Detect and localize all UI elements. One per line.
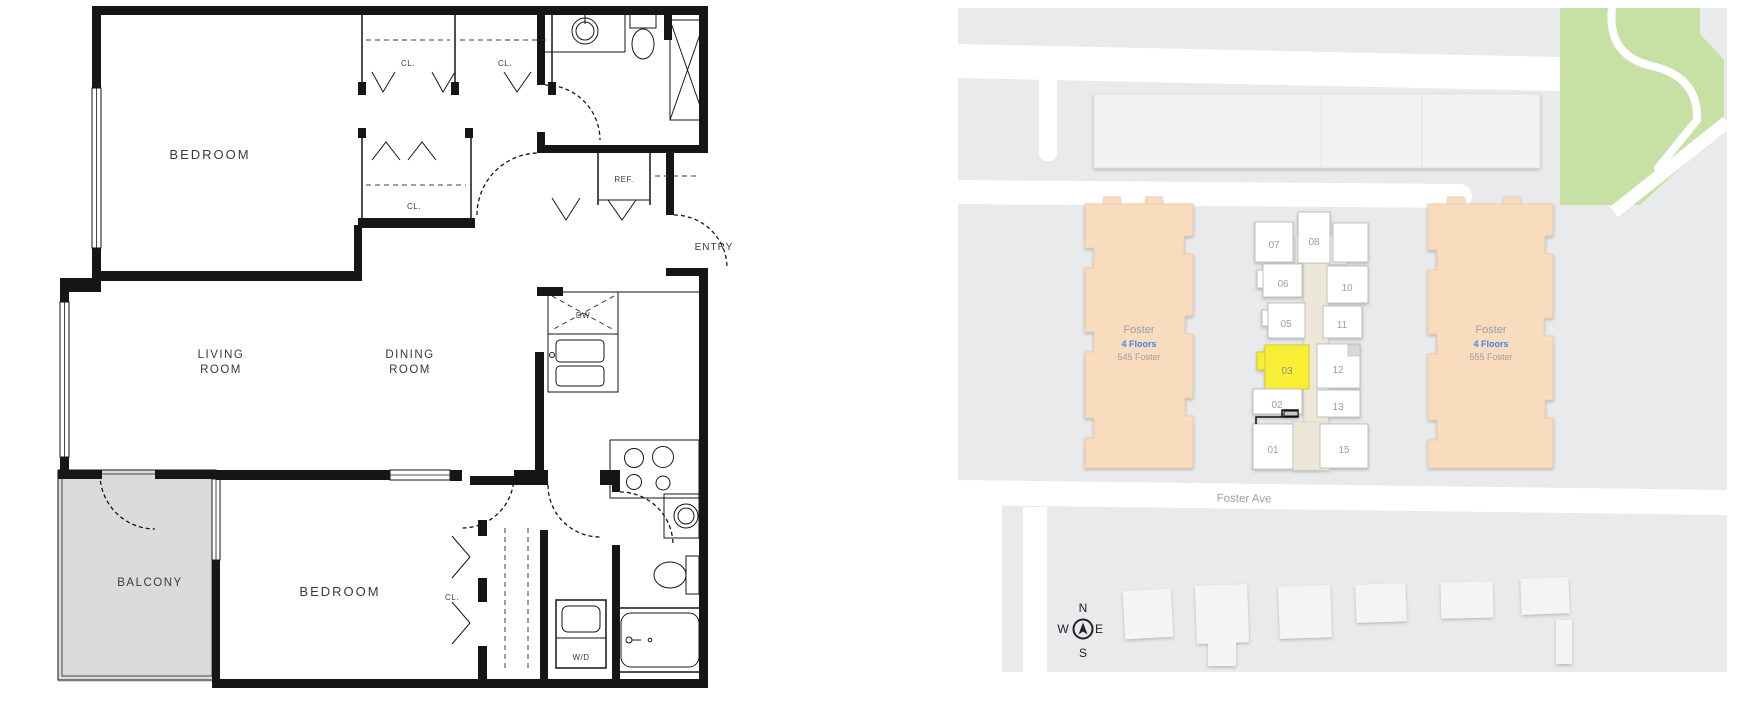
living-room-label: LIVING bbox=[198, 349, 245, 361]
unit-15-label: 15 bbox=[1338, 445, 1350, 456]
kitchen-sink-icon bbox=[556, 340, 604, 362]
listing-page: BEDROOM CL. CL. CL. REF. ENTRY DW LIVING… bbox=[0, 0, 1742, 718]
commercial-block bbox=[1094, 94, 1540, 168]
unit-10-label: 10 bbox=[1341, 283, 1353, 294]
bathroom2-fixtures bbox=[556, 494, 704, 672]
building-555-foster[interactable]: Foster 4 Floors 555 Foster bbox=[1428, 197, 1553, 468]
stove-icon bbox=[625, 449, 644, 468]
unit-08-label: 08 bbox=[1308, 237, 1320, 248]
street-label: Foster Ave bbox=[1217, 493, 1272, 506]
fridge-label: REF. bbox=[614, 175, 633, 184]
building-545-foster[interactable]: Foster 4 Floors 545 Foster bbox=[1085, 197, 1193, 468]
entry-label: ENTRY bbox=[695, 242, 734, 253]
closet3-label: CL. bbox=[407, 202, 421, 211]
closet2-label: CL. bbox=[498, 59, 512, 68]
toilet-icon bbox=[630, 13, 656, 28]
dining-room-label: DINING bbox=[385, 349, 434, 361]
bedroom1-label: BEDROOM bbox=[169, 147, 250, 162]
dishwasher-label: DW bbox=[576, 311, 590, 320]
unit-13-label: 13 bbox=[1332, 402, 1344, 413]
svg-text:ROOM: ROOM bbox=[389, 364, 431, 376]
toilet2-icon bbox=[686, 556, 699, 594]
unit-11-label: 11 bbox=[1337, 320, 1348, 331]
balcony-area bbox=[58, 470, 216, 682]
road-vertical-bottomleft bbox=[1023, 507, 1047, 672]
floor-plan: BEDROOM CL. CL. CL. REF. ENTRY DW LIVING… bbox=[58, 6, 733, 688]
balcony-label: BALCONY bbox=[117, 577, 182, 589]
compass-east: E bbox=[1095, 622, 1103, 636]
building-545-address: 545 Foster bbox=[1117, 352, 1160, 362]
compass-north: N bbox=[1079, 601, 1088, 615]
unit-03-label: 03 bbox=[1281, 366, 1293, 377]
svg-text:ROOM: ROOM bbox=[200, 364, 242, 376]
road-vertical-topleft bbox=[1039, 57, 1057, 161]
unit-07-label: 07 bbox=[1268, 240, 1280, 251]
bedroom2-label: BEDROOM bbox=[299, 584, 380, 599]
building-545-floors[interactable]: 4 Floors bbox=[1121, 339, 1156, 349]
closet4-label: CL. bbox=[445, 593, 459, 602]
site-map: Foster 4 Floors 545 Foster Foster 4 Floo… bbox=[958, 8, 1727, 672]
bathtub-icon bbox=[616, 608, 704, 672]
unit-top-right[interactable] bbox=[1333, 223, 1368, 262]
compass-south: S bbox=[1079, 646, 1087, 660]
washer-dryer-label: W/D bbox=[572, 653, 589, 662]
unit-02-label: 02 bbox=[1271, 400, 1283, 411]
unit-01-label: 01 bbox=[1267, 445, 1279, 456]
building-555-floors[interactable]: 4 Floors bbox=[1473, 339, 1508, 349]
compass-west: W bbox=[1057, 622, 1069, 636]
building-545-name: Foster bbox=[1123, 324, 1155, 336]
unit-05-label: 05 bbox=[1280, 319, 1292, 330]
unit-12-label: 12 bbox=[1332, 365, 1344, 376]
unit-06-label: 06 bbox=[1277, 279, 1289, 290]
bathroom1-fixtures bbox=[545, 13, 705, 120]
kitchen-fixtures bbox=[548, 292, 699, 498]
closet1-label: CL. bbox=[401, 59, 415, 68]
building-555-name: Foster bbox=[1475, 324, 1507, 336]
building-555-address: 555 Foster bbox=[1469, 352, 1512, 362]
road-middle bbox=[958, 180, 1472, 208]
